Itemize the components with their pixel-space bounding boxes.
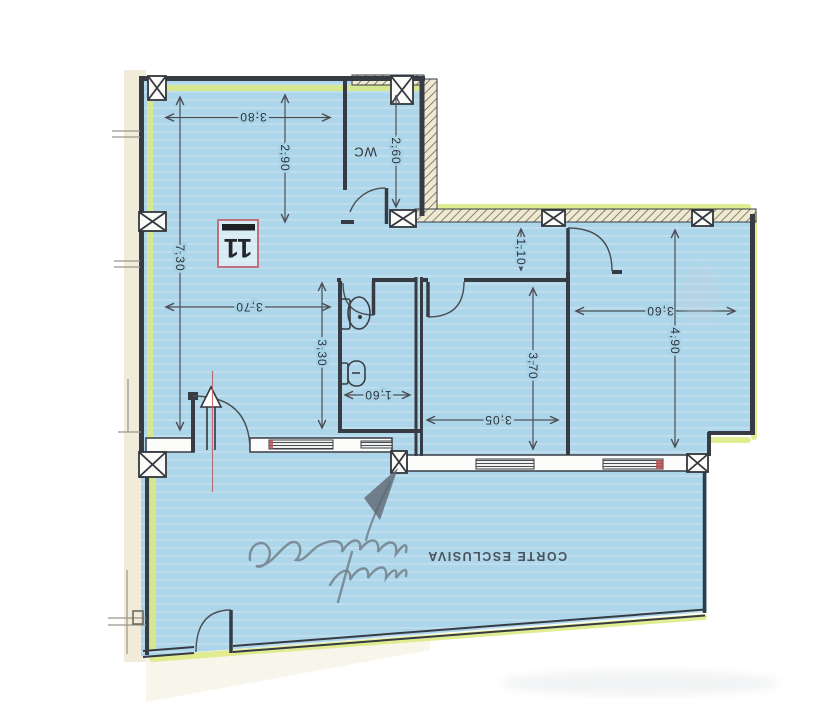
dim-label: 3,80 [239, 110, 266, 124]
floor-plan-svg: 3,80 2,90 2,60 7,30 3,70 3,30 1,60 1,10 [0, 0, 834, 719]
red-pen-tick [656, 460, 663, 469]
pillar [139, 212, 166, 231]
window [603, 459, 663, 469]
unit-number: 11 [224, 233, 253, 263]
dim-label: 3,70 [526, 352, 540, 379]
scan-streak-texture [141, 76, 755, 656]
window [269, 440, 333, 449]
red-pen-tick [269, 440, 273, 449]
pillar [687, 454, 708, 472]
bedroom-bottom-wall [407, 455, 707, 471]
dim-label: 4,90 [668, 327, 682, 354]
dim-label: 3,05 [484, 413, 511, 427]
floor-plan-scan: 3,80 2,90 2,60 7,30 3,70 3,30 1,60 1,10 [0, 0, 834, 719]
pillar [148, 76, 166, 100]
dim-label: 2,90 [278, 144, 292, 171]
window [361, 441, 392, 448]
dim-label: 2,60 [389, 137, 403, 164]
dim-label: 7,30 [173, 244, 187, 271]
courtyard-label: CORTE ESCLUSIVA [427, 549, 567, 563]
scan-ghost-smudge [682, 265, 718, 325]
scan-ghost-smudge [500, 670, 780, 696]
dim-label: 1,10 [514, 238, 528, 265]
dim-label: 3,60 [646, 304, 673, 318]
wc-room-label: WC [353, 145, 377, 160]
pillar [139, 452, 166, 477]
badge-underline-bar [222, 224, 255, 231]
pillar [542, 210, 565, 226]
pillar [390, 210, 416, 227]
dim-label: 3,30 [315, 339, 329, 366]
pillar [391, 76, 413, 104]
unit-number-badge: 11 [218, 220, 258, 267]
hatched-wall-upper-right [424, 79, 437, 213]
pillar [692, 210, 713, 226]
dim-label: 3,70 [235, 300, 262, 314]
window [476, 459, 534, 469]
dim-label: 1,60 [364, 388, 391, 402]
pillar [391, 451, 407, 473]
living-bottom-wall [146, 438, 392, 452]
